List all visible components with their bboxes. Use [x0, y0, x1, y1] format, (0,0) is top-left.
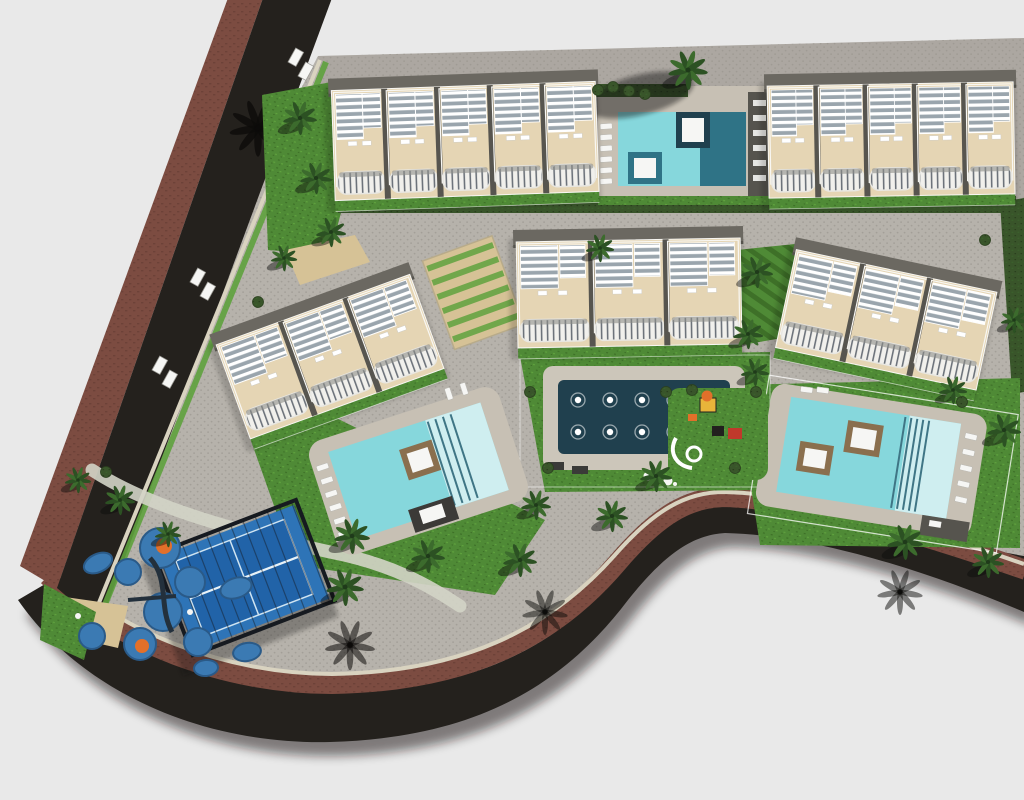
play-seat: [688, 414, 697, 421]
terrace-lounger: [707, 288, 716, 293]
pergola: [820, 89, 845, 136]
pergola: [919, 87, 944, 134]
play-canopy: [702, 391, 713, 402]
sun-lounger: [600, 123, 612, 129]
terrace-lounger: [520, 135, 529, 140]
sun-lounger: [816, 387, 829, 394]
pergola: [709, 242, 735, 275]
terrace-lounger: [687, 288, 696, 293]
soft-surface-blob: [175, 567, 205, 597]
bush: [640, 89, 651, 100]
terrace-lounger: [844, 137, 853, 142]
terrace-lounger: [558, 290, 567, 295]
pergola: [494, 88, 522, 134]
pergola: [796, 89, 813, 125]
bush: [608, 82, 619, 93]
pergola: [634, 243, 660, 276]
sun-lounger: [600, 134, 612, 140]
terrace-lounger: [415, 139, 424, 144]
sun-lounger: [600, 156, 612, 162]
terrace-lounger: [633, 289, 642, 294]
terrace-lounger: [831, 137, 840, 142]
play-block: [728, 428, 742, 439]
pergola: [415, 91, 434, 126]
building-north-west: [323, 69, 603, 213]
terrace-lounger: [782, 138, 791, 143]
pergola: [943, 87, 960, 123]
fountain-jet: [607, 429, 613, 435]
fountain-jet: [607, 397, 613, 403]
bush: [751, 387, 762, 398]
terrace-lounger: [453, 138, 462, 143]
terrace-lounger: [362, 141, 371, 146]
terrace-lounger: [943, 135, 952, 140]
terrace-lounger: [929, 136, 938, 141]
pergola: [520, 245, 558, 289]
pergola: [520, 87, 539, 122]
terrace-lounger: [538, 291, 547, 296]
playground-east: [668, 388, 768, 480]
fountain-jet: [639, 397, 645, 403]
terrace-lounger: [559, 134, 568, 139]
site-plan-render: [0, 0, 1024, 800]
bush: [101, 467, 112, 478]
pergola: [388, 92, 416, 138]
pergola: [670, 243, 708, 287]
play-disc: [135, 639, 149, 653]
play-block: [712, 426, 724, 436]
bush: [661, 387, 672, 398]
terrace-lounger: [468, 137, 477, 142]
fountain-jet: [639, 429, 645, 435]
bush: [687, 385, 698, 396]
pergola: [468, 89, 487, 124]
pergola: [968, 86, 993, 133]
terrace-lounger: [894, 136, 903, 141]
building-centre: [508, 226, 745, 360]
pergola: [771, 90, 796, 137]
pergola: [870, 88, 895, 135]
bush: [525, 387, 536, 398]
bush: [543, 463, 554, 474]
pergola: [993, 86, 1010, 122]
pergola: [336, 94, 364, 140]
bush: [624, 86, 635, 97]
bench: [572, 466, 588, 474]
terrace-lounger: [348, 141, 357, 146]
sun-lounger: [800, 386, 813, 393]
pergola: [845, 89, 862, 125]
pergola: [547, 86, 575, 132]
bush: [253, 297, 264, 308]
bench: [75, 613, 81, 619]
pergola: [441, 90, 469, 136]
bush: [957, 397, 968, 408]
pergola: [573, 86, 592, 121]
soft-surface-blob: [184, 628, 212, 656]
soft-surface-blob: [79, 623, 105, 649]
terrace-lounger: [506, 136, 515, 141]
sun-lounger: [600, 145, 612, 151]
terrace-lounger: [979, 135, 988, 140]
bush: [980, 235, 991, 246]
bush: [730, 463, 741, 474]
terrace-lounger: [795, 138, 804, 143]
fountain-jet: [575, 429, 581, 435]
sun-lounger: [600, 167, 612, 173]
terrace-lounger: [401, 139, 410, 144]
terrace-lounger: [992, 135, 1001, 140]
bush: [593, 85, 604, 96]
soft-surface-blob: [115, 559, 141, 585]
pergola: [560, 245, 586, 278]
pergola: [894, 88, 911, 124]
pergola: [362, 93, 381, 128]
terrace-lounger: [613, 289, 622, 294]
fountain-jet: [575, 397, 581, 403]
building-north-east: [759, 70, 1018, 210]
terrace-lounger: [573, 133, 582, 138]
aerial-render-canvas: [0, 0, 1024, 800]
sun-lounger: [600, 178, 612, 184]
terrace-lounger: [880, 137, 889, 142]
